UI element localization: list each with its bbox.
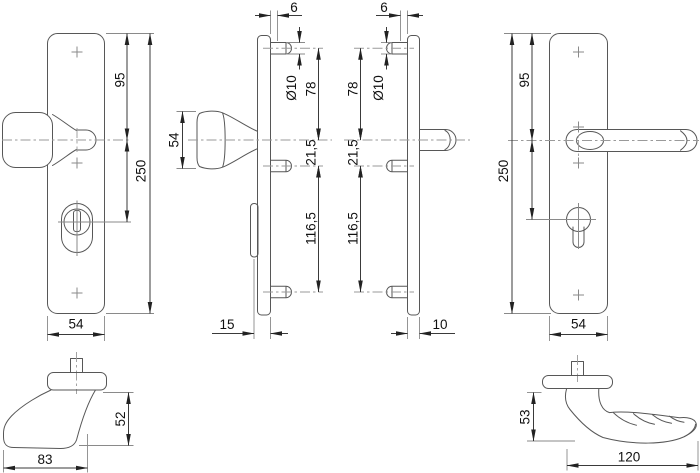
dim-label: 250	[496, 160, 511, 183]
dim-label: Ø10	[284, 75, 299, 101]
dim-label: 116,5	[304, 212, 319, 245]
dim-label: 54	[167, 132, 182, 148]
dim-label: 10	[432, 317, 447, 332]
dim-label: 21,5	[304, 139, 319, 165]
dim-label: 6	[380, 0, 388, 15]
dim-label: 120	[618, 450, 641, 465]
dim-label: 21,5	[346, 139, 361, 165]
dim-label: 78	[304, 81, 319, 96]
technical-drawing-canvas: 95 250 54 54	[0, 0, 700, 473]
dim-label: 53	[518, 409, 533, 424]
dim-label: 83	[37, 452, 52, 467]
dim-label: 54	[68, 317, 84, 332]
dim-label: 6	[290, 0, 298, 15]
dim-label: 15	[219, 317, 234, 332]
dim-label: 116,5	[346, 212, 361, 245]
dim-label: 54	[571, 317, 587, 332]
dim-label: Ø10	[371, 75, 386, 101]
dim-label: 95	[113, 72, 128, 87]
dim-label: 95	[517, 72, 532, 87]
dim-label: 52	[113, 411, 128, 426]
dim-label: 78	[346, 81, 361, 96]
dim-label: 250	[134, 160, 149, 183]
